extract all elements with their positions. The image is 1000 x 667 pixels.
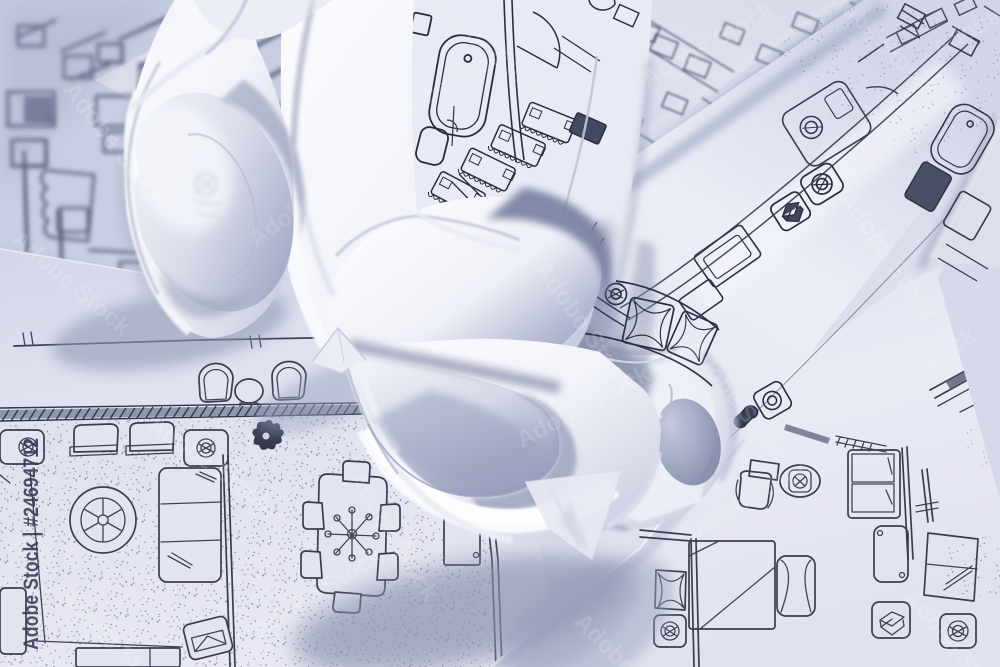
svg-text:Adobe Stock | #24694712: Adobe Stock | #24694712: [20, 438, 43, 650]
